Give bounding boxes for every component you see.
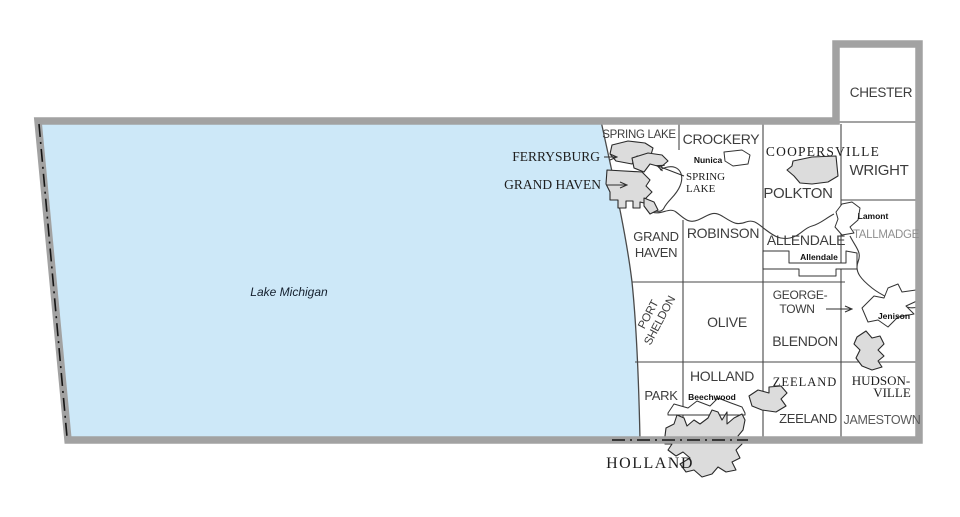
zeeland-city-shape <box>749 386 787 412</box>
grand-haven-city-spur <box>644 198 658 214</box>
label-hudsonville-2: VILLE <box>873 385 911 400</box>
label-beechwood: Beechwood <box>688 392 736 402</box>
label-nunica: Nunica <box>694 155 723 165</box>
label-spring-lake-township: SPRING LAKE <box>602 129 676 141</box>
coopersville-shape <box>787 156 838 184</box>
label-blendon: BLENDON <box>772 333 838 349</box>
label-zeeland-township: ZEELAND <box>779 411 837 426</box>
label-grand-haven-township-1: GRAND <box>633 229 678 244</box>
label-grand-haven-city: GRAND HAVEN <box>504 177 601 192</box>
label-spring-lake-city-1: SPRING <box>686 171 725 183</box>
label-holland-township: HOLLAND <box>690 368 754 384</box>
label-jenison: Jenison <box>878 311 910 321</box>
label-zeeland-city: ZEELAND <box>773 375 838 389</box>
label-coopersville: COOPERSVILLE <box>766 144 880 159</box>
label-crockery: CROCKERY <box>683 131 761 147</box>
label-jamestown: JAMESTOWN <box>844 413 921 427</box>
label-georgetown-1: GEORGE- <box>773 288 828 302</box>
label-polkton: POLKTON <box>763 185 832 202</box>
lake-michigan-label: Lake Michigan <box>250 285 328 299</box>
hudsonville-shape <box>854 331 884 370</box>
label-allendale-township: ALLENDALE <box>767 232 845 248</box>
label-olive: OLIVE <box>707 314 747 330</box>
county-map: Lake Michigan CHESTER SPRING LAKE CROCKE… <box>0 0 960 517</box>
label-spring-lake-city-2: LAKE <box>686 183 716 195</box>
label-allendale-community: Allendale <box>800 252 838 262</box>
label-lamont: Lamont <box>858 211 889 221</box>
label-wright: WRIGHT <box>849 162 908 179</box>
label-tallmadge: TALLMADGE <box>853 229 920 241</box>
label-park: PARK <box>644 388 678 403</box>
label-georgetown-2: TOWN <box>779 302 814 316</box>
label-chester: CHESTER <box>850 85 913 100</box>
label-grand-haven-township-2: HAVEN <box>635 245 677 260</box>
label-robinson: ROBINSON <box>687 225 759 241</box>
map-canvas: Lake Michigan CHESTER SPRING LAKE CROCKE… <box>0 0 960 517</box>
label-ferrysburg: FERRYSBURG <box>512 149 600 164</box>
lake-michigan-area <box>38 121 640 440</box>
label-holland-city: HOLLAND <box>606 455 694 472</box>
nunica-outline <box>724 150 750 166</box>
label-port-sheldon: PORT SHELDON <box>631 288 678 347</box>
